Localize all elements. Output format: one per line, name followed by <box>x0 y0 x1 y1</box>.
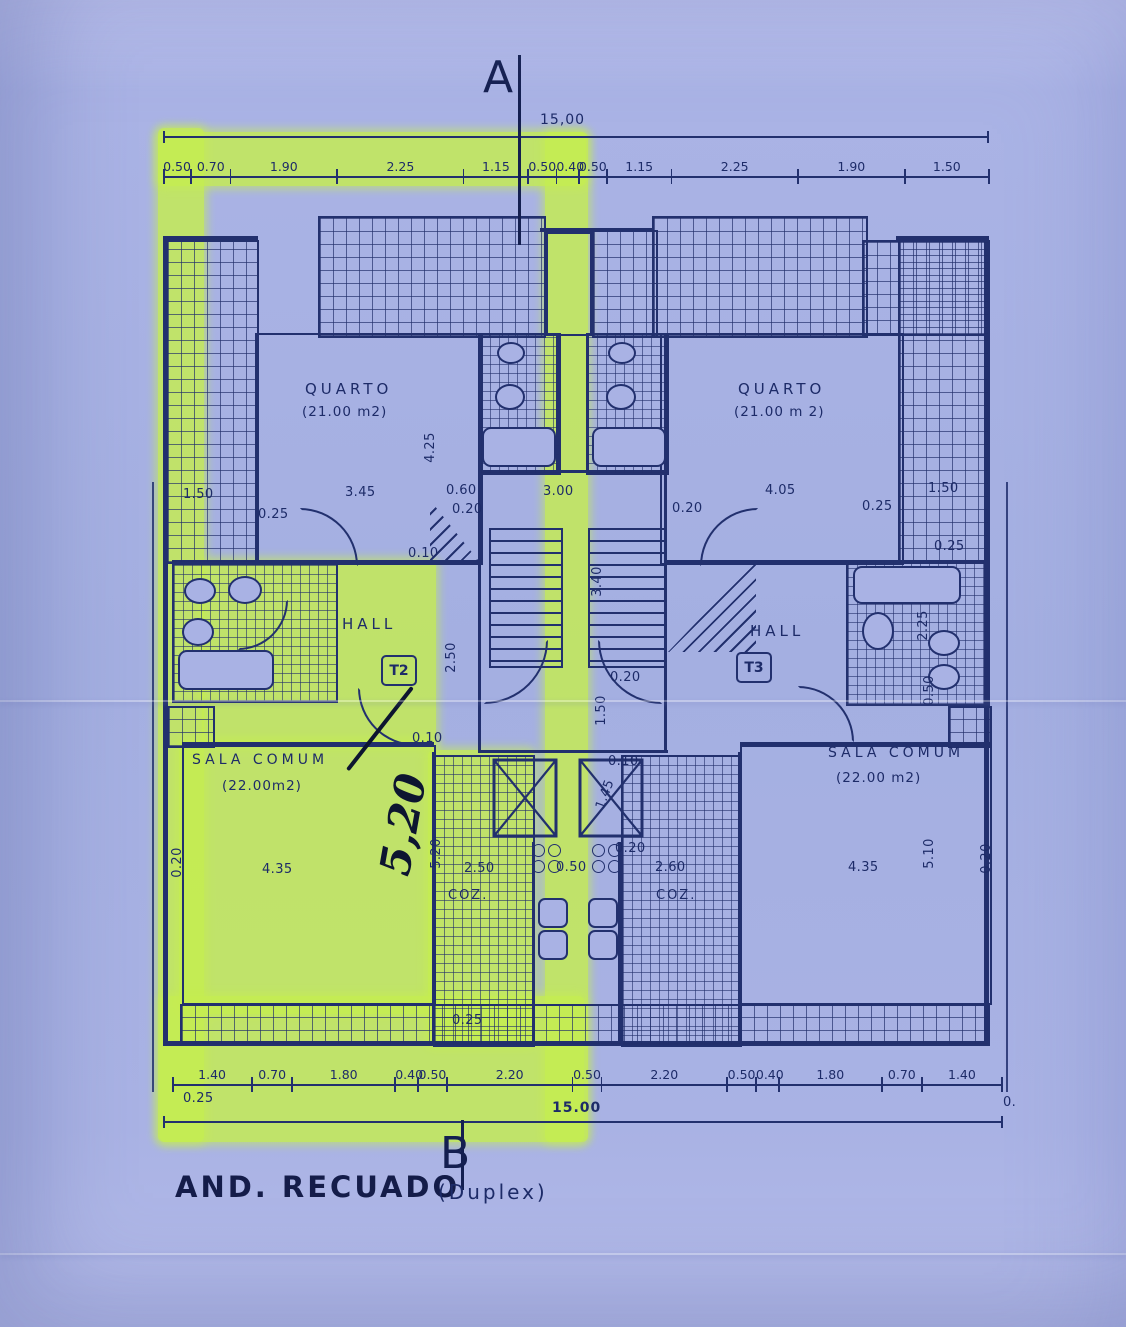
sink-symbol <box>588 930 618 960</box>
dimension-row-top: 0.500.701.902.251.150.500.400.501.152.25… <box>163 150 989 186</box>
stove-symbol <box>592 844 605 857</box>
corner-hatch-sala-left <box>167 706 215 748</box>
terrace-hatch-top-center <box>592 230 658 338</box>
dimension-segment: 1.80 <box>292 1058 395 1094</box>
room-area-quarto-right: (21.00 m 2) <box>734 404 825 420</box>
wall <box>478 750 668 753</box>
dimension-label: 4.25 <box>423 432 438 463</box>
dimension-label: 2.50 <box>444 642 459 673</box>
room-label-coz-left: COZ. <box>448 888 488 903</box>
unit-tag-t3: T3 <box>736 652 772 683</box>
room-label-sala-left: SALA COMUM <box>192 752 328 768</box>
dimension-segment: 1.40 <box>172 1058 252 1094</box>
dimension-segment: 0.50 <box>163 150 191 186</box>
dimension-segment: 0.70 <box>882 1058 922 1094</box>
bidet-symbol <box>862 612 894 650</box>
overall-dimension-line-top <box>163 136 989 138</box>
dimension-segment: 0.40 <box>395 1058 418 1094</box>
dimension-label: 0.10 <box>608 754 639 769</box>
room-label-quarto-left: QUARTO <box>305 380 392 398</box>
paper-crease <box>0 700 1126 702</box>
room-label-sala-right: SALA COMUM <box>828 745 964 761</box>
bathtub-symbol <box>178 650 274 690</box>
dimension-label: 0.50 <box>556 860 587 875</box>
dimension-segment: 0.50 <box>573 1058 602 1094</box>
room-area-sala-left: (22.00m2) <box>222 778 302 794</box>
dimension-segment: 0.50 <box>727 1058 756 1094</box>
overall-dimension-top: 15,00 <box>540 112 585 128</box>
dimension-label: 2.50 <box>464 861 495 876</box>
sink-symbol <box>588 898 618 928</box>
dimension-label: 0.10 <box>412 731 443 746</box>
dimension-label: 0.25 <box>258 507 289 522</box>
room-quarto-right <box>660 333 904 565</box>
dimension-segment: 1.40 <box>922 1058 1002 1094</box>
dimension-label: 0.20 <box>170 847 185 878</box>
dimension-label: 4.35 <box>262 862 293 877</box>
scanned-floor-plan: 15,00 0.500.701.902.251.150.500.400.501.… <box>0 0 1126 1327</box>
drawing-title-suffix: (Duplex) <box>438 1180 548 1204</box>
dimension-segment: 1.90 <box>230 150 337 186</box>
dimension-line <box>172 1084 1002 1086</box>
section-line-a <box>518 55 521 245</box>
dimension-label: 2.60 <box>655 860 686 875</box>
dimension-segment: 2.25 <box>337 150 463 186</box>
drawing-title: AND. RECUADO <box>175 1170 460 1204</box>
sink-symbol <box>538 930 568 960</box>
dimension-label: 4.05 <box>765 483 796 498</box>
bathtub-symbol <box>853 566 961 604</box>
dimension-segment: 0.70 <box>191 150 230 186</box>
dimension-segment: 0.50 <box>528 150 556 186</box>
stove-symbol <box>548 844 561 857</box>
dimension-segment: 0.70 <box>252 1058 292 1094</box>
dimension-label: 0.25 <box>452 1013 483 1028</box>
dimension-label: 0.20 <box>610 670 641 685</box>
dimension-segment: 2.20 <box>447 1058 573 1094</box>
dimension-row-bottom: 1.400.701.800.400.502.200.502.200.500.40… <box>172 1058 1002 1094</box>
dimension-label: 3.00 <box>543 484 574 499</box>
stove-symbol <box>592 860 605 873</box>
wc-symbol <box>608 342 636 364</box>
sink-symbol <box>538 898 568 928</box>
dimension-segment: 1.80 <box>779 1058 882 1094</box>
dimension-segment: 1.90 <box>798 150 905 186</box>
dimension-segment: 0.50 <box>579 150 607 186</box>
room-label-quarto-right: QUARTO <box>738 380 825 398</box>
paper-crease <box>0 1253 1126 1255</box>
dimension-label: 0.25 <box>862 499 893 514</box>
overall-dimension-bottom: 15.00 <box>552 1100 601 1116</box>
dimension-segment: 2.25 <box>672 150 798 186</box>
stove-symbol <box>532 860 545 873</box>
stove-symbol <box>608 860 621 873</box>
bidet-symbol <box>606 384 636 410</box>
dimension-label: 5.10 <box>922 838 937 869</box>
corner-hatch-sala-right <box>948 706 992 748</box>
room-label-coz-right: COZ. <box>656 888 696 903</box>
dimension-label: 4.35 <box>848 860 879 875</box>
dimension-label: 2.25 <box>916 610 931 641</box>
side-hatch-left <box>166 240 259 564</box>
vent-shaft <box>546 232 592 336</box>
margin-dim-line <box>1006 482 1008 1092</box>
door-arc <box>484 640 548 704</box>
balcony-hatch-bottom <box>180 1004 990 1046</box>
dimension-label: 0.20 <box>979 843 994 874</box>
dimension-label: 0.20 <box>615 841 646 856</box>
dimension-label: 0.20 <box>452 502 483 517</box>
dimension-label: 0.10 <box>408 546 439 561</box>
stove-symbol <box>532 844 545 857</box>
wc-symbol <box>928 630 960 656</box>
bathtub-symbol <box>592 427 666 467</box>
overall-dimension-line-bottom <box>163 1121 1003 1123</box>
room-label-hall-right: HALL <box>750 622 804 640</box>
dimension-label: 5.20 <box>429 838 444 869</box>
dimension-label: 3.45 <box>345 485 376 500</box>
dimension-label: 1.50 <box>928 481 959 496</box>
room-area-quarto-left: (21.00 m2) <box>302 404 387 420</box>
stairs-symbol <box>668 560 756 652</box>
bidet-symbol <box>182 618 214 646</box>
dimension-label: 0. <box>1003 1095 1016 1110</box>
corner-hatch-top-right <box>862 240 990 336</box>
dimension-label: 0.25 <box>934 539 965 554</box>
bathtub-symbol <box>482 427 556 467</box>
dimension-label: 1.50 <box>183 487 214 502</box>
room-label-hall-left: HALL <box>342 615 396 633</box>
dimension-label: 0.60 <box>446 483 477 498</box>
dimension-segment: 1.50 <box>905 150 989 186</box>
unit-tag-t2: T2 <box>381 655 417 686</box>
dimension-segment: 2.20 <box>601 1058 727 1094</box>
section-marker-a: A <box>483 52 513 103</box>
bidet-symbol <box>495 384 525 410</box>
dimension-segment: 0.40 <box>556 150 578 186</box>
dimension-line <box>163 176 989 178</box>
wc-symbol <box>497 342 525 364</box>
wc-symbol <box>184 578 216 604</box>
dimension-label: 0.25 <box>183 1091 214 1106</box>
dimension-label: 0.20 <box>672 501 703 516</box>
terrace-hatch-top-left <box>318 216 546 338</box>
dimension-segment: 1.15 <box>607 150 672 186</box>
margin-dim-line <box>152 482 154 1092</box>
room-area-sala-right: (22.00 m2) <box>836 770 921 786</box>
dimension-segment: 0.40 <box>756 1058 779 1094</box>
elevator-symbol <box>492 758 558 838</box>
dimension-label: 3.40 <box>590 566 605 597</box>
terrace-hatch-top-right <box>652 216 868 338</box>
dimension-segment: 0.50 <box>418 1058 447 1094</box>
